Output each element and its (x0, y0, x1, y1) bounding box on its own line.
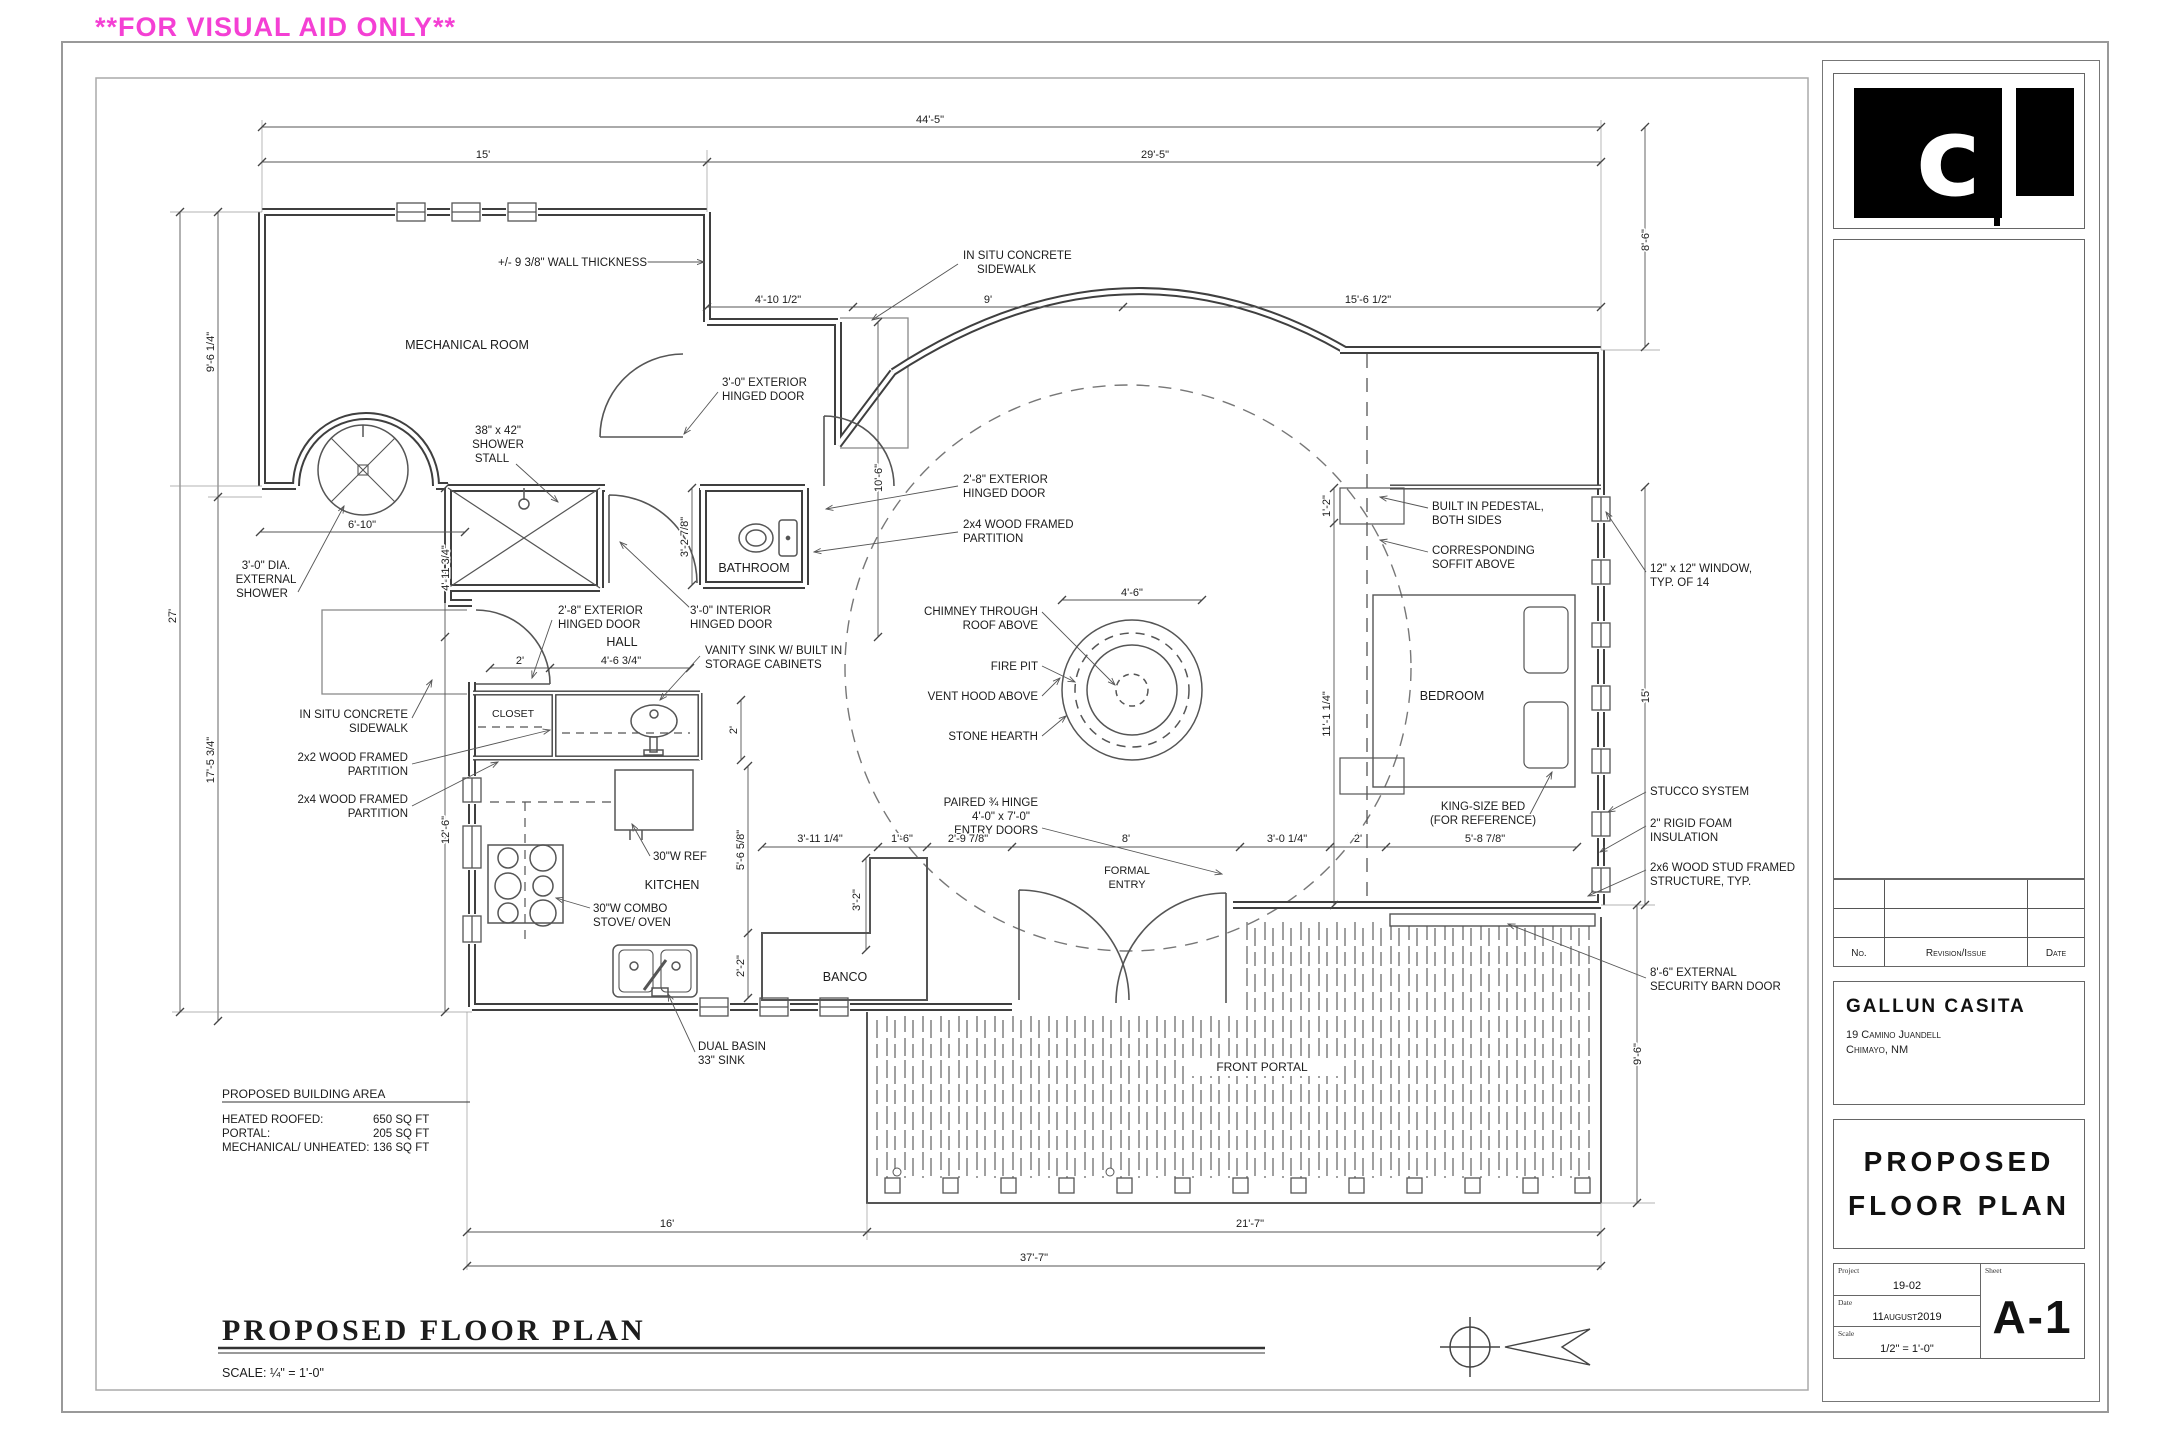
leader-line (1042, 678, 1060, 696)
callout-interior-door: HINGED DOOR (690, 619, 772, 631)
dim-label: 1'-2" (1321, 495, 1333, 517)
leader-line (556, 898, 590, 908)
callout-exterior-door: 3'-0" EXTERIOR (722, 377, 807, 389)
building-area-value: 650 SQ FT (373, 1114, 429, 1126)
callout-insulation: 2" RIGID FOAM (1650, 818, 1732, 830)
callout-sidewalk-left: SIDEWALK (349, 723, 408, 735)
callout-hall-ext-door: HINGED DOOR (558, 619, 640, 631)
dim-label: 4'-11 3/4" (440, 545, 452, 591)
dim-label: 17'-5 3/4" (205, 737, 217, 783)
callout-vent-hood: VENT HOOD ABOVE (928, 691, 1039, 703)
leader-line (1380, 540, 1428, 552)
revision-table-header: No. Revision/Issue Date (1834, 938, 2084, 968)
dim-label: 9'-6" (1632, 1043, 1644, 1065)
room-label-kitchen: KITCHEN (645, 878, 700, 892)
leader-line (412, 762, 498, 806)
callout-chimney: CHIMNEY THROUGH (924, 606, 1038, 618)
leader-line (412, 680, 432, 718)
leader-line (1608, 792, 1646, 812)
callout-sink: 33" SINK (698, 1055, 745, 1067)
callout-partition-2x2: 2x2 WOOD FRAMED (297, 752, 408, 764)
dim-label: 10'-6" (873, 464, 885, 492)
dim-label: 15' (1640, 689, 1652, 703)
building-area-row: MECHANICAL/ UNHEATED: (222, 1142, 369, 1154)
title-block: c No. Revision/Issue Date GALLUN CASITA … (1822, 60, 2100, 1402)
scale-value: 1/2" = 1'-0" (1834, 1343, 1980, 1355)
leader-line (1042, 716, 1066, 736)
room-label-bedroom: BEDROOM (1420, 689, 1485, 703)
plan-labels: MECHANICAL ROOMBATHROOMHALLCLOSETKITCHEN… (167, 114, 1795, 1380)
dim-label: 11'-1 1/4" (1321, 691, 1333, 737)
room-label-formal-entry: ENTRY (1108, 879, 1146, 891)
callout-stucco: STUCCO SYSTEM (1650, 786, 1749, 798)
dim-label: 2'-9 7/8" (948, 833, 988, 845)
callout-vanity: STORAGE CABINETS (705, 659, 822, 671)
callout-sink: DUAL BASIN (698, 1041, 766, 1053)
callout-vanity: VANITY SINK W/ BUILT IN (705, 645, 842, 657)
callout-wall-thickness: +/- 9 3/8" WALL THICKNESS (498, 257, 647, 269)
callout-partition-2x2: PARTITION (348, 766, 408, 778)
callout-pedestal: BOTH SIDES (1432, 515, 1502, 527)
callout-barn-door: 8'-6" EXTERNAL (1650, 967, 1737, 979)
room-label-formal-entry: FORMAL (1104, 865, 1150, 877)
callout-partition-2x4: PARTITION (963, 533, 1023, 545)
dim-label: 3'-2" (851, 889, 863, 911)
revision-row (1834, 909, 2084, 938)
leader-line (516, 464, 558, 502)
dim-label: 21'-7" (1236, 1218, 1264, 1230)
room-label-banco: BANCO (823, 970, 868, 984)
drawing-scale: SCALE: ¼" = 1'-0" (222, 1366, 324, 1380)
revision-col-issue: Revision/Issue (1884, 948, 2028, 959)
callout-window-typ: TYP. OF 14 (1650, 577, 1710, 589)
leader-line (872, 264, 958, 320)
dim-label: 6'-10" (348, 519, 376, 531)
callout-stove: 30"W COMBO (593, 903, 667, 915)
dim-label: 3'-11 1/4" (797, 833, 843, 845)
callout-king-bed: (FOR REFERENCE) (1430, 815, 1536, 827)
sheet-title-line2: FLOOR PLAN (1848, 1184, 2070, 1228)
dim-label: 3'-0 1/4" (1267, 833, 1307, 845)
callout-shower-stall: 38" x 42" (475, 425, 521, 437)
callout-stove: STOVE/ OVEN (593, 917, 671, 929)
building-area-value: 205 SQ FT (373, 1128, 429, 1140)
dim-label: 29'-5" (1141, 149, 1169, 161)
leader-line (826, 486, 958, 509)
date-label: Date (1838, 1298, 1852, 1307)
leader-line (668, 994, 695, 1052)
security-barn-door (1390, 914, 1595, 926)
callout-fire-pit: FIRE PIT (991, 661, 1038, 673)
dim-label: 2' (1354, 833, 1362, 845)
callout-sidewalk-top: IN SITU CONCRETE (963, 250, 1072, 262)
drawing-title: PROPOSED FLOOR PLAN (222, 1314, 646, 1347)
callout-external-shower: SHOWER (236, 588, 288, 600)
sheet-number-cell: Sheet A-1 (1981, 1264, 2084, 1358)
north-arrow (1440, 1317, 1590, 1377)
dim-label: 8' (1122, 833, 1130, 845)
callout-hall-ext-door: 2'-8" EXTERIOR (558, 605, 643, 617)
callout-shower-stall: STALL (475, 453, 510, 465)
callout-soffit: CORRESPONDING (1432, 545, 1535, 557)
callout-exterior-door: HINGED DOOR (722, 391, 804, 403)
scale-cell: Scale 1/2" = 1'-0" (1834, 1327, 1980, 1358)
callout-entry-doors: PAIRED ¾ HINGE (944, 797, 1039, 809)
dim-label: 16' (660, 1218, 674, 1230)
logo-bar (2016, 88, 2074, 196)
dim-label: 3'-2 7/8" (679, 517, 691, 557)
revision-col-no: No. (1834, 948, 1884, 959)
client-box: GALLUN CASITA 19 Camino Juandell Chimayo… (1833, 981, 2085, 1105)
sheet-number: A-1 (1981, 1290, 2084, 1344)
callout-sidewalk-top: SIDEWALK (977, 264, 1036, 276)
dim-label: 5'-6 5/8" (735, 830, 747, 870)
dim-label: 27' (167, 609, 179, 623)
dim-label: 5'-8 7/8" (1465, 833, 1505, 845)
callout-stud-structure: STRUCTURE, TYP. (1650, 876, 1751, 888)
dim-label: 2'-2" (735, 955, 747, 977)
callout-external-shower: 3'-0" DIA. (242, 560, 290, 572)
callout-insulation: INSULATION (1650, 832, 1718, 844)
revision-table: No. Revision/Issue Date (1833, 879, 2085, 967)
sheet-title-box: PROPOSED FLOOR PLAN (1833, 1119, 2085, 1249)
date-value: 11august2019 (1834, 1311, 1980, 1323)
logo-letter-c: c (1916, 102, 1981, 212)
project-name: GALLUN CASITA (1846, 996, 2072, 1018)
dim-label: 2' (516, 655, 524, 667)
callout-stone-hearth: STONE HEARTH (948, 731, 1038, 743)
dim-label: 4'-6" (1121, 587, 1143, 599)
callout-window-typ: 12" x 12" WINDOW, (1650, 563, 1752, 575)
callout-ref: 30"W REF (653, 851, 707, 863)
callout-barn-door: SECURITY BARN DOOR (1650, 981, 1781, 993)
callout-pedestal: BUILT IN PEDESTAL, (1432, 501, 1544, 513)
logo-square: c (1854, 88, 2002, 218)
dim-label: 4'-10 1/2" (755, 294, 801, 306)
leader-line (1528, 772, 1552, 818)
callout-king-bed: KING-SIZE BED (1441, 801, 1525, 813)
dim-label: 37'-7" (1020, 1252, 1048, 1264)
building-area-value: 136 SQ FT (373, 1142, 429, 1154)
building-area-row: PORTAL: (222, 1128, 270, 1140)
dim-label: 2' (728, 726, 740, 734)
dim-label: 8'-6" (1640, 229, 1652, 251)
revision-row (1834, 880, 2084, 909)
leader-line (632, 824, 650, 856)
dim-label: 15' (476, 149, 490, 161)
leader-line (814, 532, 958, 552)
callout-entry-doors: 4'-0" x 7'-0" (972, 811, 1030, 823)
dim-label: 4'-6 3/4" (601, 655, 641, 667)
scale-label: Scale (1838, 1329, 1854, 1338)
dim-label: 44'-5" (916, 114, 944, 126)
leader-line (684, 392, 718, 434)
callout-partition-2x4b: 2x4 WOOD FRAMED (297, 794, 408, 806)
dim-label: 9'-6 1/4" (205, 332, 217, 372)
logo-stem (1994, 134, 2000, 226)
dim-label: 9' (984, 294, 992, 306)
project-number-cell: Project 19-02 (1834, 1264, 1980, 1296)
dim-label: 15'-6 1/2" (1345, 294, 1391, 306)
callout-partition-2x4: 2x4 WOOD FRAMED (963, 519, 1074, 531)
project-address-line2: Chimayo, NM (1846, 1043, 2072, 1058)
leader-line (1042, 612, 1115, 685)
revision-col-date: Date (2028, 948, 2084, 959)
callout-external-shower: EXTERNAL (236, 574, 297, 586)
project-label: Project (1838, 1266, 1859, 1275)
date-cell: Date 11august2019 (1834, 1296, 1980, 1328)
sheet: **FOR VISUAL AID ONLY** (0, 0, 2173, 1448)
building-area-heading: PROPOSED BUILDING AREA (222, 1087, 385, 1101)
project-number: 19-02 (1834, 1280, 1980, 1292)
callout-soffit: SOFFIT ABOVE (1432, 559, 1515, 571)
sheet-title-line1: PROPOSED (1864, 1140, 2055, 1184)
callout-partition-2x4b: PARTITION (348, 808, 408, 820)
room-label-hall: HALL (606, 635, 637, 649)
room-label-bathroom: BATHROOM (718, 561, 789, 575)
callout-bath-ext-door: 2'-8" EXTERIOR (963, 474, 1048, 486)
dim-label: 12'-6" (440, 816, 452, 844)
dim-label: 1'-6" (891, 833, 913, 845)
sheet-label: Sheet (1985, 1266, 2002, 1275)
notes-box (1833, 239, 2085, 879)
callout-stud-structure: 2x6 WOOD STUD FRAMED (1650, 862, 1795, 874)
room-label-front-portal: FRONT PORTAL (1216, 1060, 1308, 1074)
callout-chimney: ROOF ABOVE (963, 620, 1039, 632)
callout-interior-door: 3'-0" INTERIOR (690, 605, 771, 617)
callout-bath-ext-door: HINGED DOOR (963, 488, 1045, 500)
building-area-row: HEATED ROOFED: (222, 1114, 323, 1126)
callout-sidewalk-left: IN SITU CONCRETE (299, 709, 408, 721)
leader-line (298, 506, 344, 592)
room-label-mechanical: MECHANICAL ROOM (405, 338, 529, 352)
sheet-info-box: Project 19-02 Date 11august2019 Scale 1/… (1833, 1263, 2085, 1359)
room-label-closet: CLOSET (492, 708, 535, 720)
logo: c (1833, 73, 2085, 229)
project-address-line1: 19 Camino Juandell (1846, 1028, 2072, 1043)
callout-shower-stall: SHOWER (472, 439, 524, 451)
